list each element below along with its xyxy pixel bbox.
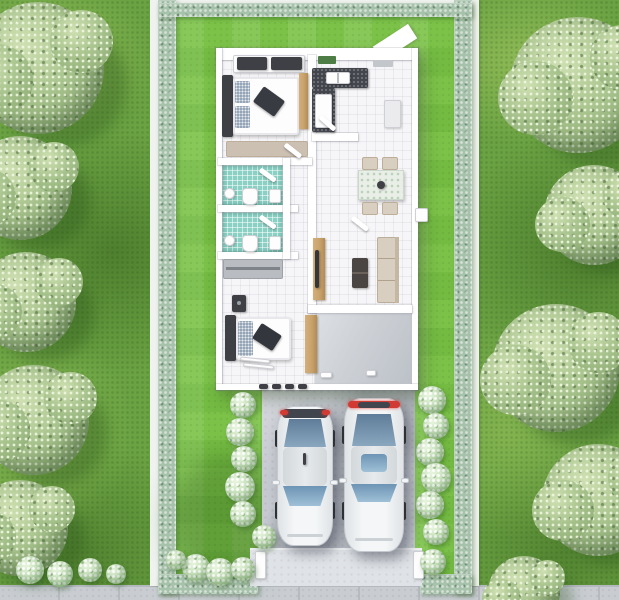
dining-chair xyxy=(382,202,398,215)
bedroom2-window xyxy=(285,384,294,389)
gate-post-right xyxy=(413,551,424,579)
bath1-shower-tray xyxy=(269,189,281,203)
wall-living-porch xyxy=(308,305,412,313)
bath2-shower-tray xyxy=(269,236,281,250)
sofa-cushion-line xyxy=(378,258,395,259)
bedroom2-window xyxy=(259,384,268,389)
car-mirror xyxy=(401,478,409,483)
car-mirror xyxy=(330,480,338,485)
bedroom2-pillow xyxy=(238,321,253,356)
bedroom1-pillow xyxy=(235,81,250,103)
car-mirror xyxy=(272,480,280,485)
perimeter-hedge-bottom-left xyxy=(158,574,258,594)
bedroom1-side-cabinet xyxy=(299,73,308,129)
car-rear-glass xyxy=(284,419,326,447)
refrigerator xyxy=(384,100,401,128)
car-rear-glass xyxy=(352,414,396,446)
perimeter-hedge-left xyxy=(158,0,176,594)
house xyxy=(216,48,418,390)
sofa-backrest xyxy=(395,237,399,303)
car-front-grille xyxy=(355,538,393,541)
bedroom2-window xyxy=(298,384,307,389)
nightstand-knob xyxy=(237,301,241,305)
bedroom1-bed-headboard xyxy=(222,75,233,137)
perimeter-hedge-right xyxy=(454,0,472,594)
outside-grass-right xyxy=(479,0,619,600)
coffee-table-divider xyxy=(352,272,368,274)
boundary-fence-left xyxy=(150,0,158,586)
car-right xyxy=(344,398,404,552)
dining-chair xyxy=(362,157,378,170)
bedroom2-bed-headboard xyxy=(225,315,236,361)
kitchen-sink-divider xyxy=(337,73,339,83)
gate-post-left xyxy=(255,551,266,579)
bedroom2-wardrobe-line xyxy=(226,267,280,270)
street-sidewalk xyxy=(0,585,619,600)
car-trunk xyxy=(282,409,328,418)
porch-step-marker xyxy=(366,370,376,376)
bath2-toilet xyxy=(242,235,258,252)
bedroom1-pillow xyxy=(235,106,250,128)
car-trunk xyxy=(358,402,390,408)
wall-bedroom1-bottom xyxy=(218,158,312,165)
bedroom1-wardrobe-panel xyxy=(271,57,302,70)
car-mirror xyxy=(339,478,347,483)
bath1-toilet xyxy=(242,188,258,205)
wall-bottom xyxy=(216,384,418,390)
porch-step-marker xyxy=(320,372,332,378)
bedroom2-window xyxy=(272,384,281,389)
kitchen-green-mat xyxy=(318,56,336,64)
car-windshield xyxy=(351,484,397,502)
table-centerpiece xyxy=(377,181,385,189)
aerial-property-render xyxy=(0,0,619,600)
bath1-basin xyxy=(224,188,235,199)
car-antenna xyxy=(303,453,306,465)
dining-chair xyxy=(382,157,398,170)
car-left xyxy=(277,406,333,546)
wall-kitchen-bottom xyxy=(312,133,358,141)
sofa-cushion-line xyxy=(378,280,395,281)
perimeter-hedge-top xyxy=(158,3,472,17)
tv xyxy=(315,250,319,288)
bath2-basin xyxy=(224,235,235,246)
driveway-apron xyxy=(250,548,422,586)
car-front-grille xyxy=(287,534,323,537)
outdoor-unit xyxy=(415,208,428,222)
car-windshield xyxy=(283,486,327,506)
dining-chair xyxy=(362,202,378,215)
perimeter-hedge-bottom-right xyxy=(420,574,472,594)
car-taillight xyxy=(322,410,330,415)
bedroom1-wardrobe-panel xyxy=(237,57,267,70)
car-taillight xyxy=(280,410,288,415)
outside-grass-left xyxy=(0,0,151,600)
boundary-fence-right xyxy=(471,0,479,586)
wall-bath-right xyxy=(283,158,290,259)
car-sunroof xyxy=(361,454,387,472)
back-doormat xyxy=(373,60,393,67)
front-door xyxy=(305,315,317,373)
